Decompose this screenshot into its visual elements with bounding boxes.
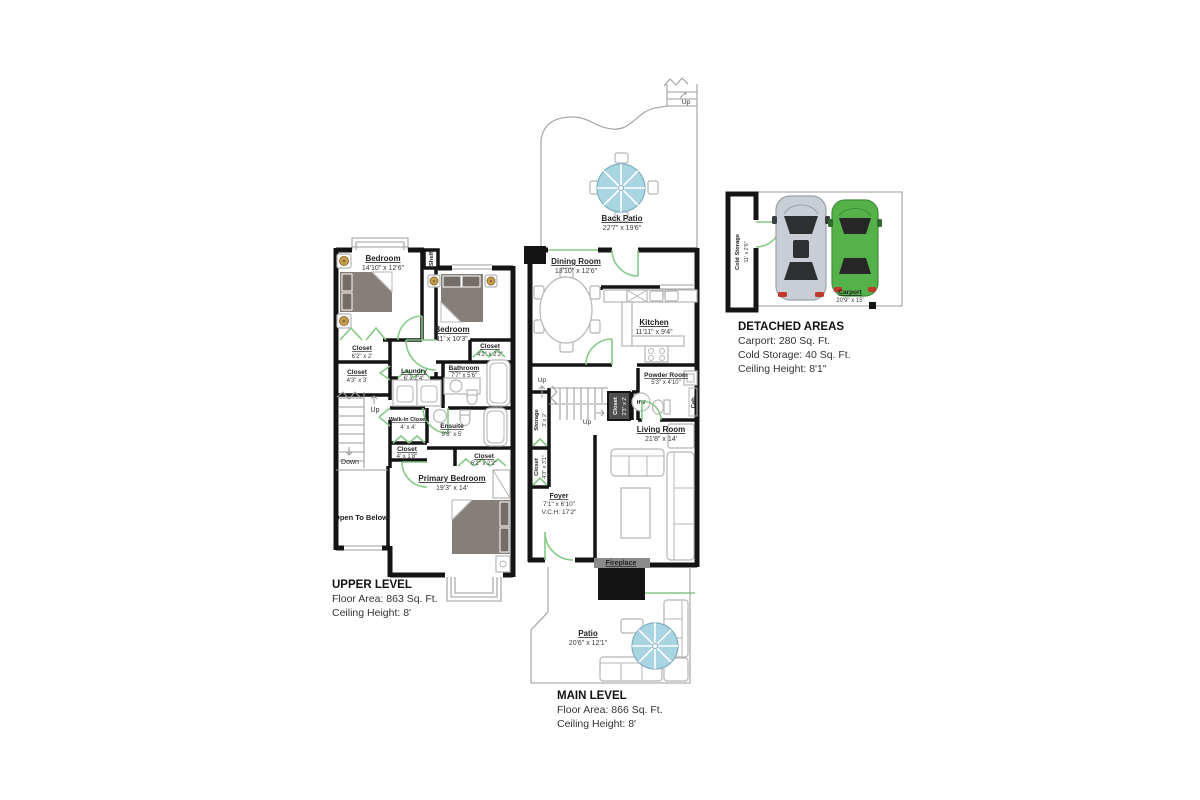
- floor-plan-canvas: Bedroom 14'10" x 12'6" Shelf Bedroom 11'…: [0, 0, 1200, 800]
- patio-label: Patio: [578, 629, 598, 638]
- upper-level-title: UPPER LEVEL: [332, 579, 412, 591]
- ensuite-dim: 9'8" x 5': [442, 432, 463, 438]
- foyer-label: Foyer: [549, 493, 568, 500]
- cold-storage-door-gap: [753, 220, 760, 248]
- patio-dim: 20'6" x 12'1": [569, 640, 608, 647]
- foyer-vch: V.C.H: 17'2": [542, 509, 577, 516]
- walkin-closet-dim: 4' x 4': [400, 425, 415, 431]
- powder-room-label: Powder Room: [644, 372, 688, 379]
- foyer-dim: 7'1" x 6'10": [543, 501, 576, 508]
- closet1-dim: 6'2" x 2': [352, 354, 373, 360]
- main-up-label-2: Up: [583, 419, 592, 426]
- floor-plan-page: Bedroom 14'10" x 12'6" Shelf Bedroom 11'…: [0, 0, 1200, 800]
- coffee-table-icon: [621, 488, 650, 538]
- back-patio-label: Back Patio: [602, 214, 643, 223]
- shelf-label: Shelf: [429, 252, 435, 266]
- carport-dim: 20'9" x 15': [836, 298, 863, 304]
- open-to-below-label: Open To Below: [334, 513, 388, 522]
- laundry-dim: 6' x 2'4": [404, 376, 425, 382]
- side-closet-dim: 4'3" x 3'1": [542, 455, 548, 479]
- carport-post: [869, 302, 876, 309]
- bedroom2-label: Bedroom: [434, 325, 469, 334]
- closet3-dim: 4'3" x 3': [347, 378, 368, 384]
- powder-room-dim: 5'3" x 4'10": [651, 380, 681, 386]
- upper-up-label: Up: [371, 407, 380, 414]
- sofa-icon: [611, 424, 694, 560]
- detached-areas-plan: Cold Storage 11' x 2'6" Carport 20'9": [728, 192, 902, 375]
- living-room-label: Living Room: [637, 425, 685, 434]
- back-patio-up-label: Up: [682, 99, 691, 106]
- upper-down-label: Down: [341, 459, 359, 466]
- closet3-label: Closet: [347, 369, 368, 376]
- main-level-plan: Back Patio 22'7" x 19'6" Up: [524, 78, 697, 730]
- closet4-dim: 4' x 1'8": [397, 454, 418, 460]
- cold-storage-room: [728, 194, 756, 310]
- kitchen-label: Kitchen: [639, 318, 668, 327]
- detached-cold-storage-line: Cold Storage: 40 Sq. Ft.: [738, 349, 851, 361]
- living-room-dim: 21'8" x 14': [645, 436, 677, 443]
- green-car-icon: [828, 200, 882, 296]
- primary-bedroom-label: Primary Bedroom: [418, 474, 485, 483]
- bathroom-dim: 7'7" x 5'6": [451, 373, 477, 379]
- ensuite-label: Ensuite: [440, 423, 464, 430]
- upper-level-area: Floor Area: 863 Sq. Ft.: [332, 593, 438, 605]
- upper-level-ceiling: Ceiling Height: 8': [332, 607, 411, 619]
- closet5-label: Closet: [474, 453, 495, 460]
- laundry-machines-icon: [393, 380, 441, 406]
- bedroom1-dim: 14'10" x 12'6": [362, 265, 405, 272]
- bathroom-label: Bathroom: [449, 365, 480, 372]
- closet4-label: Closet: [397, 446, 418, 453]
- side-closet-label: Closet: [534, 458, 540, 476]
- dining-room-dim: 13'10" x 12'6": [555, 268, 598, 275]
- carport-label: Carport: [838, 289, 862, 296]
- fireplace-label: Fireplace: [606, 560, 637, 567]
- main-level-ceiling: Ceiling Height: 8': [557, 718, 636, 730]
- upper-level-plan: Bedroom 14'10" x 12'6" Shelf Bedroom 11'…: [332, 238, 513, 619]
- bed-icon-bedroom2: [428, 274, 497, 322]
- main-level-area: Floor Area: 866 Sq. Ft.: [557, 704, 663, 716]
- cold-storage-dim: 11' x 2'6": [744, 241, 750, 262]
- walkin-closet-label: Walk-In Closet: [389, 417, 427, 423]
- dining-room-label: Dining Room: [551, 257, 601, 266]
- closet1-label: Closet: [352, 345, 373, 352]
- back-patio-dim: 22'7" x 19'6": [603, 225, 642, 232]
- storage-dim: 3' x 2': [542, 413, 548, 427]
- closet5-dim: 6'2" x 2'2": [471, 461, 497, 467]
- storage-label: Storage: [534, 408, 540, 430]
- closet2-dim: 4'2" x 2'2": [477, 352, 503, 358]
- detached-carport-line: Carport: 280 Sq. Ft.: [738, 335, 830, 347]
- main-up-label-1: Up: [538, 377, 547, 384]
- silver-car-icon: [772, 196, 830, 300]
- kitchen-dim: 11'11" x 9'4": [635, 329, 673, 336]
- main-level-title: MAIN LEVEL: [557, 690, 627, 702]
- patio-table-icon: [590, 153, 658, 222]
- detached-ceiling-line: Ceiling Height: 8'1": [738, 363, 827, 375]
- bedroom2-dim: 11' x 10'3": [436, 336, 468, 343]
- bedroom1-label: Bedroom: [365, 254, 400, 263]
- primary-bedroom-dim: 19'3" x 14': [436, 485, 468, 492]
- stair-closet-dim: 2'3" x 2': [622, 397, 628, 416]
- closet2-label: Closet: [480, 343, 501, 350]
- stair-closet-label: Closet: [613, 397, 619, 415]
- cab-label: Cab.: [691, 395, 697, 408]
- detached-areas-title: DETACHED AREAS: [738, 321, 844, 333]
- cold-storage-label: Cold Storage: [735, 233, 741, 270]
- dining-table-icon: [534, 268, 600, 352]
- laundry-label: Laundry: [401, 368, 427, 375]
